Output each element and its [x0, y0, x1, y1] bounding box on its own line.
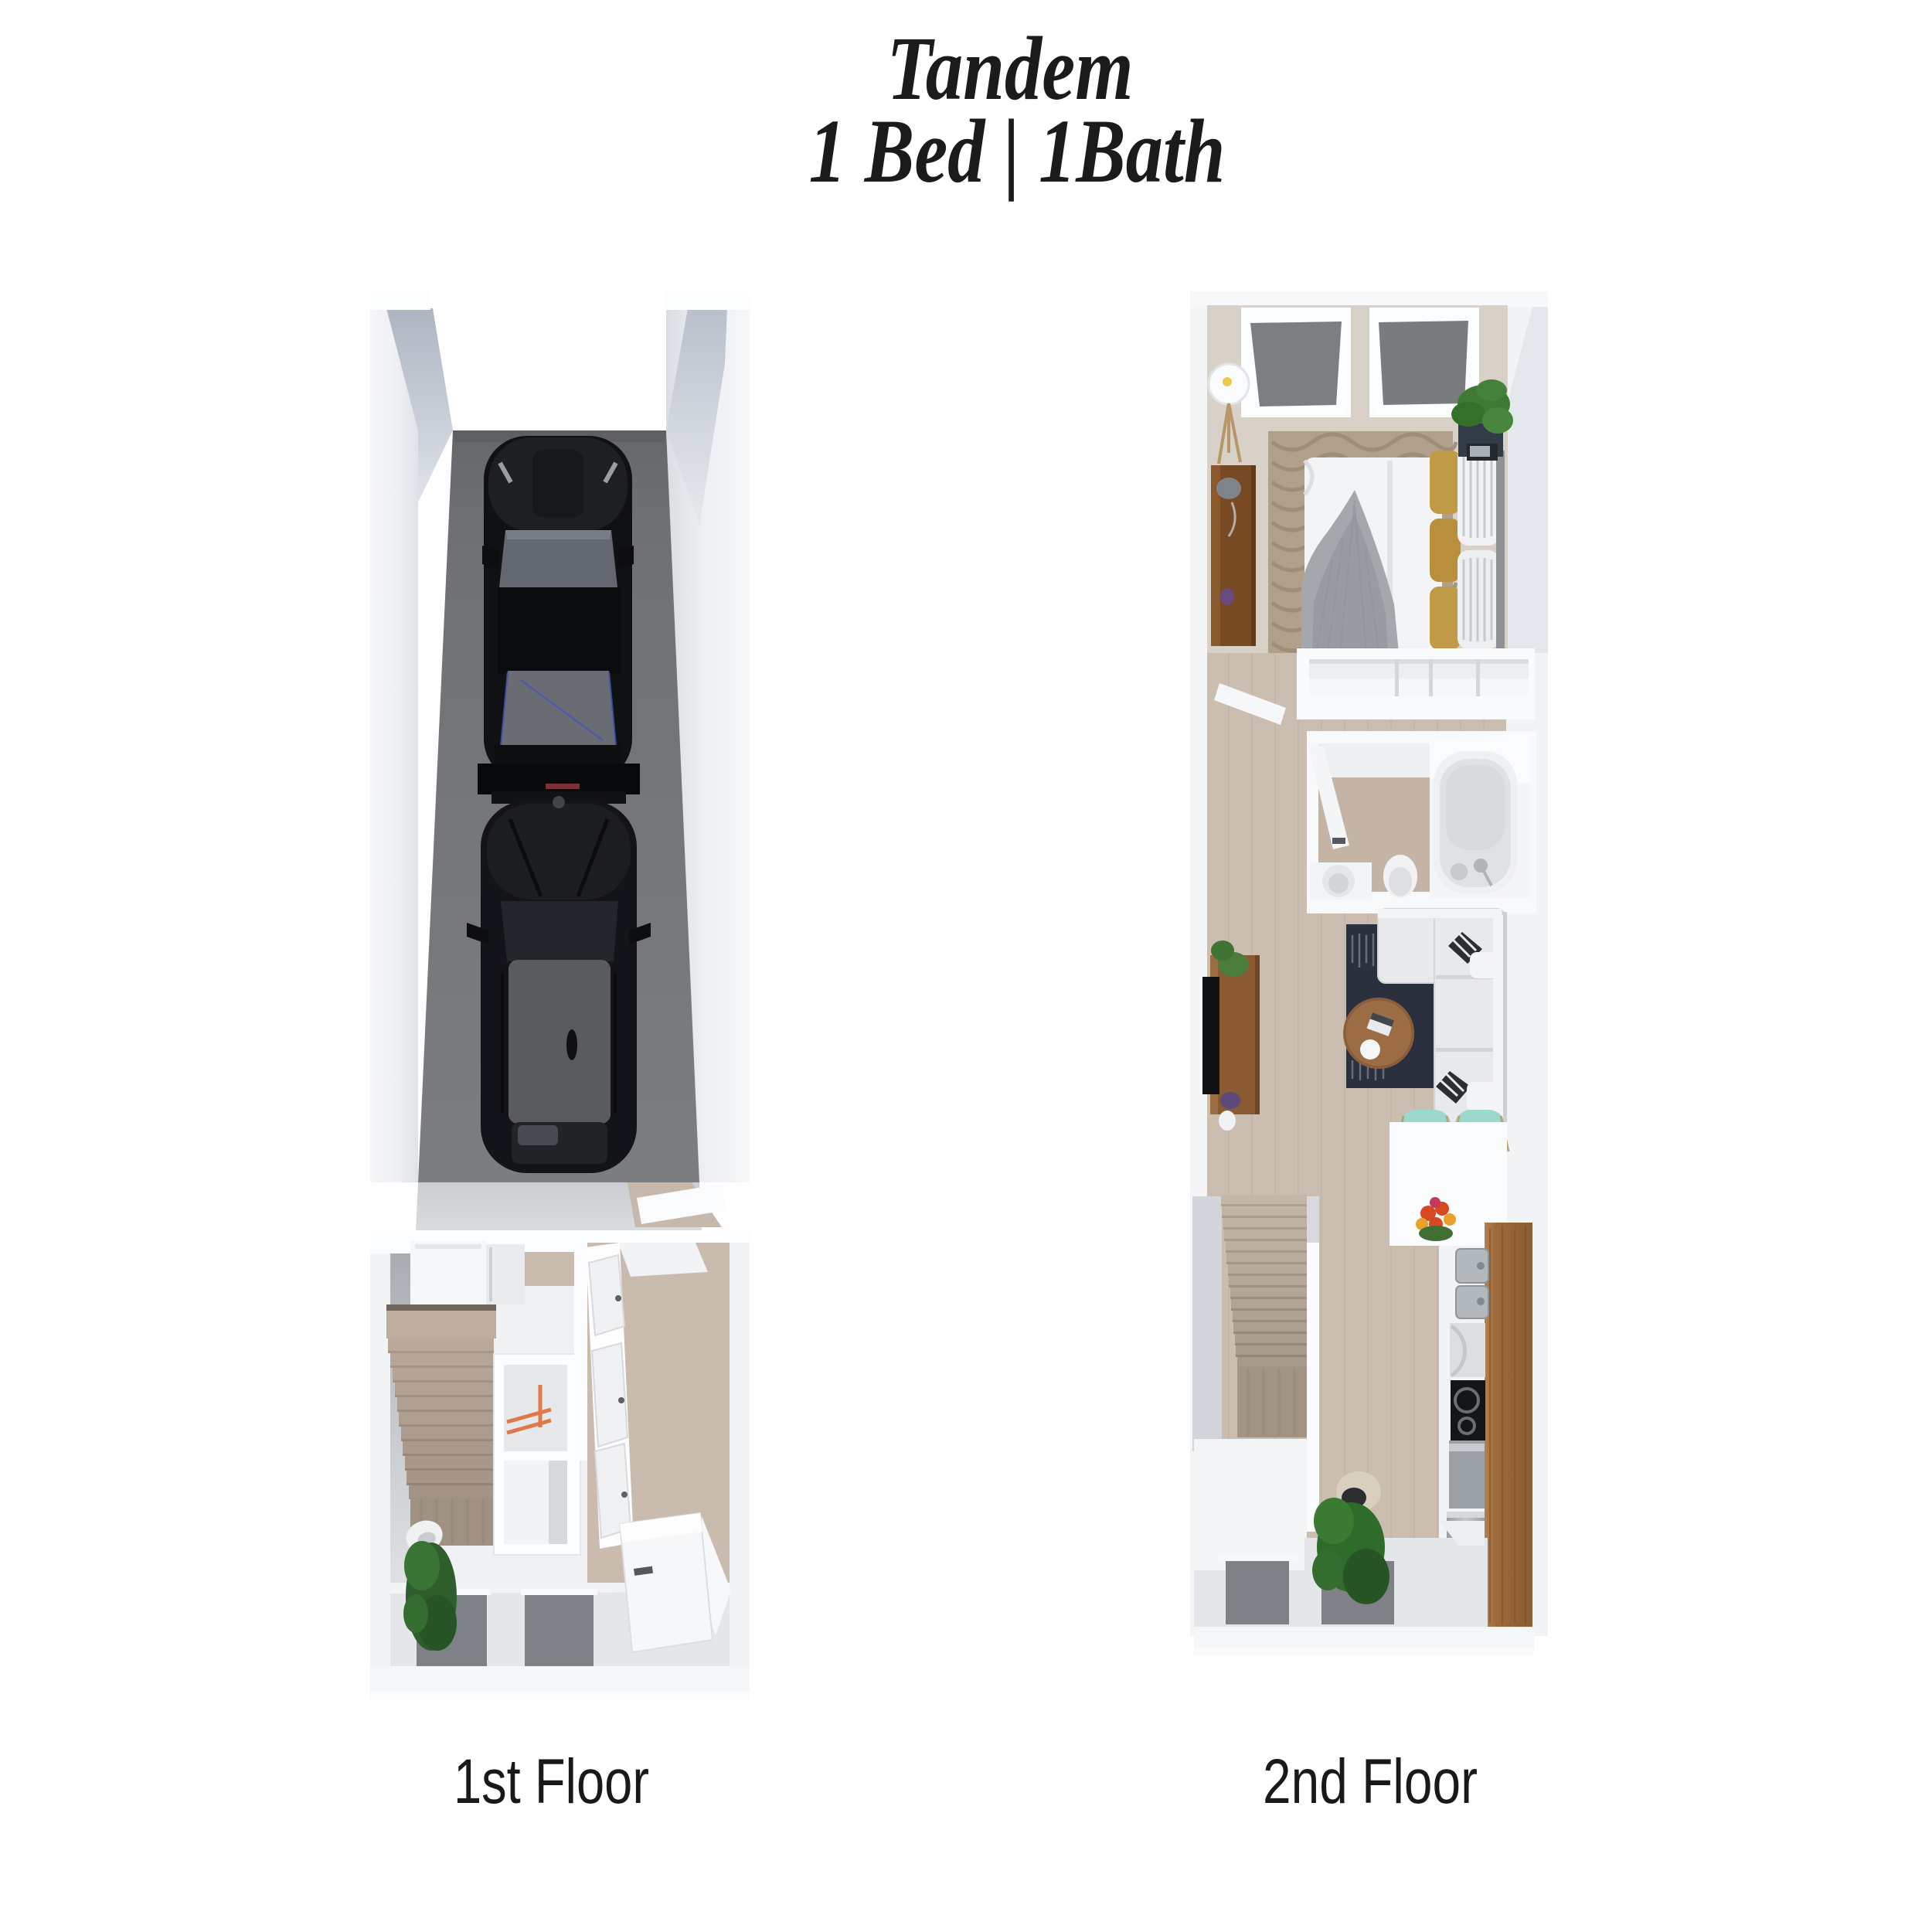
svg-text:2nd Floor: 2nd Floor [1263, 1747, 1478, 1817]
svg-text:1st Floor: 1st Floor [454, 1747, 649, 1817]
svg-text:1 Bed | 1Bath: 1 Bed | 1Bath [809, 100, 1226, 202]
